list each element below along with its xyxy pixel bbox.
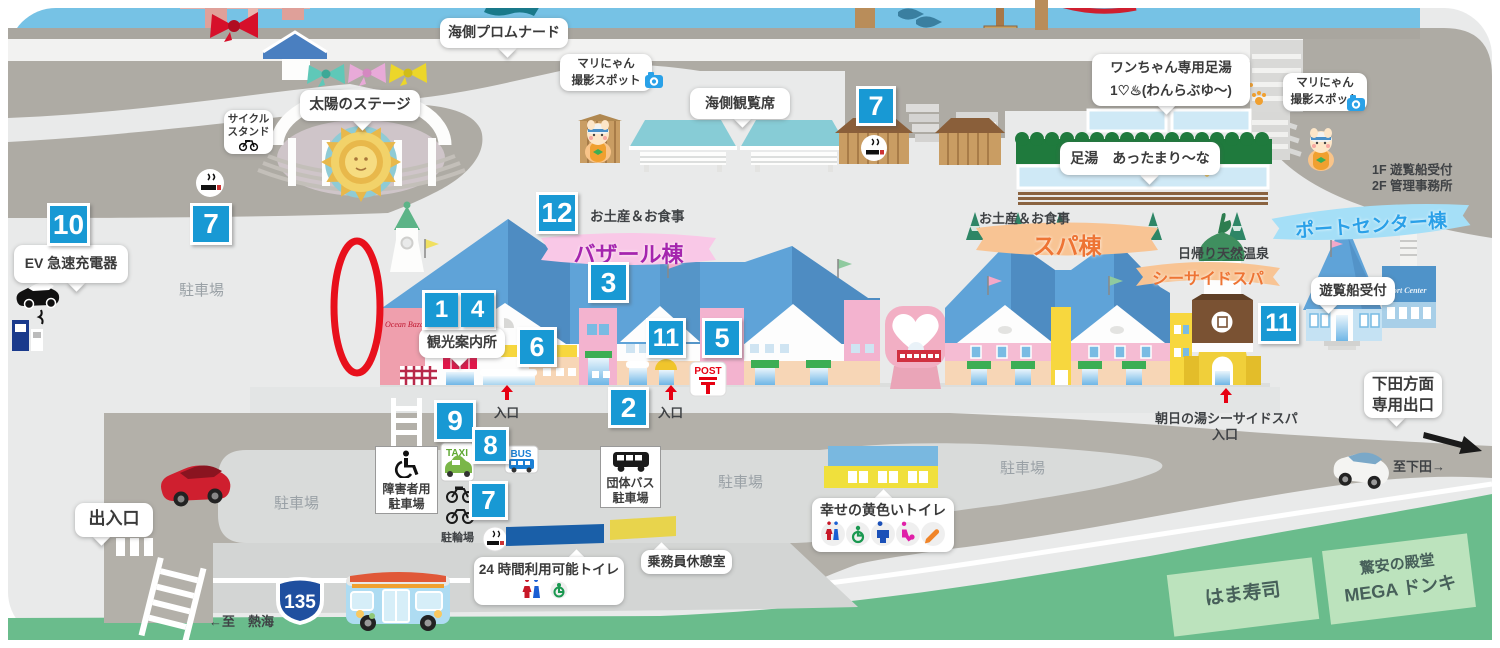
svg-text:POST: POST: [694, 366, 721, 377]
svg-text:135: 135: [284, 592, 316, 613]
svg-text:BUS: BUS: [510, 449, 531, 460]
